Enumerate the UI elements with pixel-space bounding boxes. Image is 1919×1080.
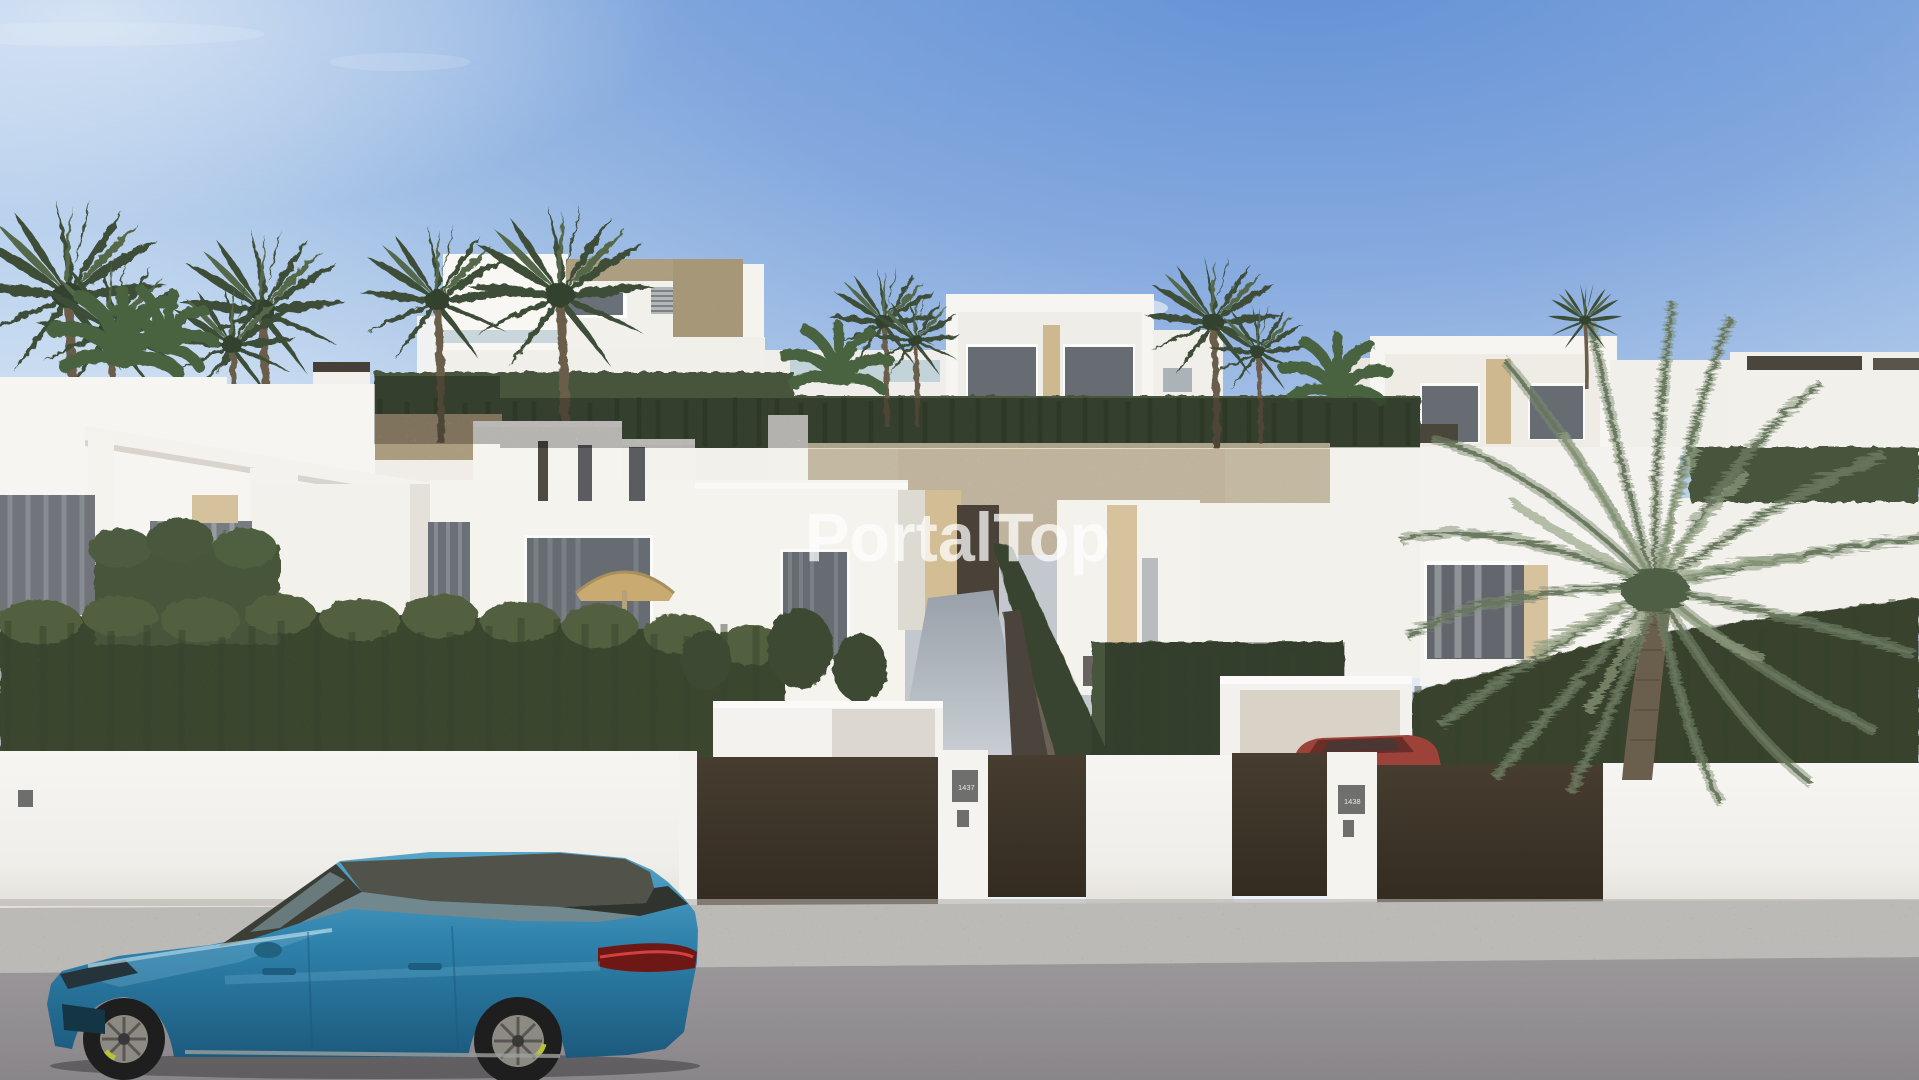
svg-text:1438: 1438 xyxy=(1344,797,1361,806)
svg-text:1437: 1437 xyxy=(958,783,975,792)
svg-text:PortalTop: PortalTop xyxy=(805,499,1110,576)
